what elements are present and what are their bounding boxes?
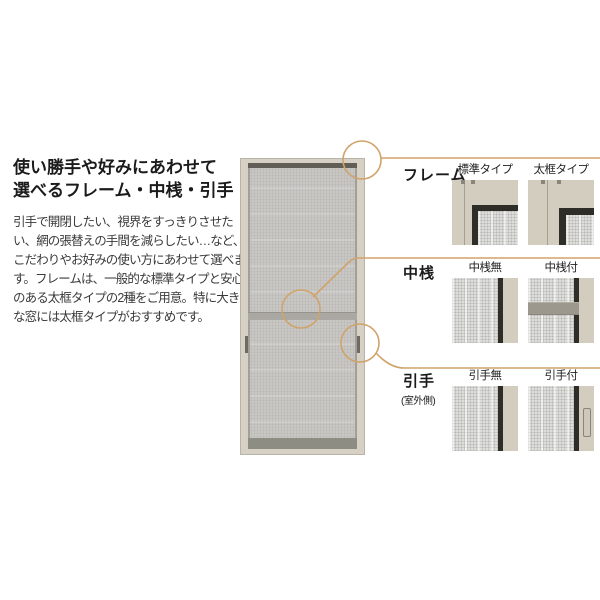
option-with-handle: 引手付 — [528, 368, 594, 451]
thumbnail-mesh — [559, 208, 594, 245]
thumbnail-with-handle — [528, 386, 594, 451]
option-caption: 太框タイプ — [528, 162, 594, 178]
option-no-handle: 引手無 — [452, 368, 518, 451]
frame-notch — [541, 180, 545, 184]
frame-notch — [557, 180, 561, 184]
section-handle-label: 引手 — [403, 370, 435, 391]
page-title-line-1: 使い勝手や好みにあわせて — [13, 156, 243, 179]
door-right-stile — [355, 163, 357, 449]
thumbnail-with-rail — [528, 278, 594, 343]
option-frame-standard: 標準タイプ — [452, 162, 518, 245]
intro-text-block: 使い勝手や好みにあわせて 選べるフレーム・中桟・引手 引手で開閉したい、視界をす… — [13, 156, 243, 327]
product-info-panel: 使い勝手や好みにあわせて 選べるフレーム・中桟・引手 引手で開閉したい、視界をす… — [0, 0, 600, 600]
door-pull-left — [245, 336, 248, 353]
door-pull-right — [357, 336, 360, 353]
frame-seam — [547, 180, 548, 245]
door-mesh — [248, 163, 357, 449]
option-with-rail: 中桟付 — [528, 260, 594, 343]
intro-paragraph-line: な窓には太框タイプがおすすめです。 — [13, 308, 243, 327]
thumbnail-mesh — [528, 386, 579, 451]
intro-paragraph-line: 引手で開閉したい、視界をすっきりさせた — [13, 213, 243, 232]
thumbnail-no-handle — [452, 386, 518, 451]
thumbnail-thick-frame — [528, 180, 594, 245]
section-middle-rail: 中桟 中桟無 中桟付 — [400, 256, 600, 356]
frame-seam — [464, 180, 465, 245]
section-handle: 引手 (室外側) 引手無 引手付 — [400, 364, 600, 464]
intro-paragraph-line: こだわりやお好みの使い方にあわせて選べま — [13, 251, 243, 270]
thumbnail-mesh — [452, 386, 503, 451]
intro-paragraph-line: のある太框タイプの2種をご用意。特に大き — [13, 289, 243, 308]
section-frame: フレーム 標準タイプ 太框タイプ — [400, 158, 600, 258]
option-caption: 引手無 — [452, 368, 518, 384]
intro-paragraph: 引手で開閉したい、視界をすっきりさせた い、網の張替えの手間を減らしたい…など、… — [13, 213, 243, 327]
middle-rail-bar — [528, 302, 579, 315]
thumbnail-no-rail — [452, 278, 518, 343]
option-frame-thick: 太框タイプ — [528, 162, 594, 245]
option-caption: 標準タイプ — [452, 162, 518, 178]
door-bottom-rail — [248, 438, 357, 449]
thumbnail-standard-frame — [452, 180, 518, 245]
door-left-stile — [248, 163, 250, 449]
section-handle-sublabel: (室外側) — [401, 392, 435, 407]
thumbnail-mesh — [452, 278, 503, 343]
pull-handle — [583, 408, 591, 437]
option-no-rail: 中桟無 — [452, 260, 518, 343]
page-title-line-2: 選べるフレーム・中桟・引手 — [13, 179, 243, 202]
option-caption: 引手付 — [528, 368, 594, 384]
door-top-rail — [248, 163, 357, 168]
thumbnail-mesh — [472, 205, 518, 245]
intro-paragraph-line: い、網の張替えの手間を減らしたい…など、 — [13, 232, 243, 251]
option-caption: 中桟無 — [452, 260, 518, 276]
section-middle-rail-label: 中桟 — [403, 262, 435, 283]
frame-notch — [471, 180, 475, 184]
option-caption: 中桟付 — [528, 260, 594, 276]
screen-door-illustration — [240, 158, 365, 455]
door-middle-rail — [248, 312, 357, 320]
frame-notch — [461, 180, 465, 184]
intro-paragraph-line: す。フレームは、一般的な標準タイプと安心感 — [13, 270, 243, 289]
